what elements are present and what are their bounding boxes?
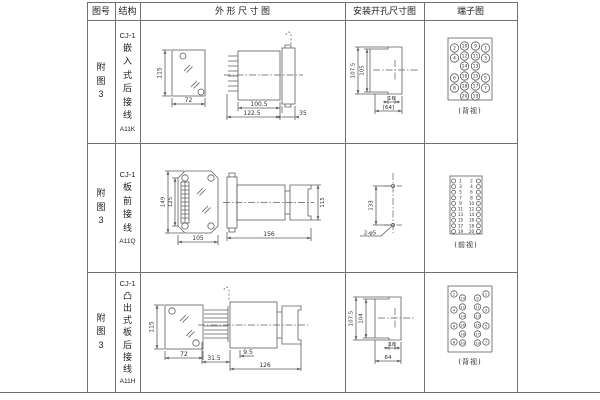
row2-fig-label: 附图3 [96, 187, 107, 228]
dim-side-2: 9.5 [243, 349, 253, 356]
svg-text:1: 1 [484, 46, 487, 52]
header-structure: 结构 [115, 2, 140, 20]
row1-code: A11K [120, 126, 135, 133]
row2-view-label: (前视) [454, 240, 477, 249]
svg-text:17: 17 [458, 223, 464, 228]
dim-front-height: 115 [149, 321, 156, 333]
svg-text:8: 8 [470, 195, 473, 200]
svg-text:16: 16 [469, 218, 475, 223]
svg-text:9: 9 [476, 295, 479, 300]
svg-text:11: 11 [475, 304, 480, 309]
svg-text:14: 14 [460, 313, 465, 318]
dim-side-1: 100.5 [250, 101, 267, 108]
svg-text:14: 14 [469, 212, 475, 217]
row2-structure-cell: CJ-1 板前接线 A11Q [115, 143, 140, 272]
row3-mount-type: 凸出式板后接线 [122, 290, 133, 375]
row1-mount-type: 嵌入式后接线 [122, 42, 133, 123]
svg-text:6: 6 [470, 190, 473, 195]
row3-fig-cell: 附图3 [87, 272, 115, 392]
svg-text:15: 15 [475, 322, 480, 327]
svg-text:20: 20 [469, 229, 475, 234]
svg-text:3: 3 [484, 56, 487, 62]
row1-outline-drawing: 115 72 100.5 122.5 35 [140, 20, 345, 143]
dim-side-3: 126 [259, 362, 271, 369]
row1-front-view: 115 72 [157, 50, 206, 107]
row1-structure-cell: CJ-1 嵌入式后接线 A11K [115, 20, 140, 143]
svg-text:3: 3 [485, 307, 488, 312]
spec-sheet-page: 图号 结构 外 形 尺 寸 图 安装开孔尺寸图 端子图 附图3 CJ-1 嵌入式… [0, 0, 600, 400]
dim-install-v-outer: 107.5 [349, 310, 355, 326]
svg-text:19: 19 [475, 340, 480, 345]
svg-text:12: 12 [460, 304, 465, 309]
row2-holes: 133 2-φ5 [360, 173, 402, 237]
row1-cutout: 107.5 105 16 [64] [351, 47, 419, 114]
svg-text:14: 14 [462, 64, 468, 70]
row3-terminal-diagram: 2 4 6 8 10 12 14 16 18 20 9 11 13 15 17 … [424, 272, 517, 392]
svg-text:5: 5 [459, 190, 462, 195]
dim-side-h: 115 [320, 197, 326, 208]
hole-callout: 2-φ5 [364, 231, 377, 237]
svg-text:7: 7 [459, 195, 462, 200]
svg-text:12: 12 [469, 207, 475, 212]
svg-text:20: 20 [460, 340, 465, 345]
dim-side-3: 35 [299, 110, 307, 117]
row2-terminal-block: 12 34 56 78 910 1112 1314 1516 1718 1920 [450, 176, 482, 234]
svg-text:9: 9 [459, 201, 462, 206]
svg-text:4: 4 [453, 56, 456, 62]
dim-front-height: 115 [157, 67, 164, 79]
dim-side-1: 31.5 [207, 355, 221, 362]
svg-text:4: 4 [470, 184, 473, 189]
dim-install-v-outer: 107.5 [351, 62, 357, 78]
row2-terminal-diagram: 12 34 56 78 910 1112 1314 1516 1718 1920… [424, 143, 517, 272]
svg-text:15: 15 [458, 218, 464, 223]
table-border-bottom [0, 392, 600, 393]
row1-model: CJ-1 [120, 31, 136, 40]
row1-view-label: (背视) [458, 106, 481, 115]
dim-install-v-inner: 104 [359, 313, 365, 324]
row1-side-view: 100.5 122.5 35 [224, 32, 307, 120]
svg-text:6: 6 [453, 76, 456, 82]
row2-side-view: 115 156 [223, 173, 326, 241]
dim-hole-spacing: 133 [369, 200, 375, 211]
svg-text:2: 2 [453, 291, 456, 296]
dim-install-h-small: 16 [389, 342, 396, 348]
row3-code: A11H [120, 378, 136, 385]
svg-text:20: 20 [462, 94, 468, 100]
svg-text:2: 2 [470, 179, 473, 184]
svg-text:17: 17 [475, 331, 480, 336]
row2-code: A11Q [119, 238, 135, 245]
svg-text:19: 19 [458, 229, 464, 234]
row2-model: CJ-1 [120, 170, 136, 179]
row3-fig-label: 附图3 [96, 312, 107, 353]
svg-text:11: 11 [458, 207, 464, 212]
row2-outline-drawing: 149 125 105 115 156 [140, 143, 345, 272]
svg-text:17: 17 [473, 84, 479, 90]
svg-text:18: 18 [460, 331, 465, 336]
svg-text:11: 11 [473, 54, 479, 60]
table-border-right [517, 2, 518, 392]
row3-outline-drawing: 115 72 9.5 31.5 126 [140, 272, 345, 392]
svg-text:13: 13 [475, 313, 480, 318]
svg-text:15: 15 [473, 74, 479, 80]
svg-text:18: 18 [462, 84, 468, 90]
row2-front-view: 149 125 105 [161, 171, 219, 245]
svg-text:16: 16 [462, 74, 468, 80]
row2-install-drawing: 133 2-φ5 [345, 143, 424, 272]
svg-text:7: 7 [484, 86, 487, 92]
svg-text:5: 5 [484, 76, 487, 82]
row3-install-drawing: 107.5 104 16 64 [345, 272, 424, 392]
svg-text:3: 3 [459, 184, 462, 189]
svg-text:12: 12 [462, 54, 468, 60]
header-terminal: 端子图 [424, 2, 517, 20]
dim-front-h2: 125 [168, 196, 174, 207]
svg-text:5: 5 [485, 323, 488, 328]
dim-install-h-small: 16 [388, 96, 395, 102]
row1-fig-label: 附图3 [96, 61, 107, 102]
svg-text:8: 8 [453, 339, 456, 344]
row1-install-drawing: 107.5 105 16 [64] [345, 20, 424, 143]
svg-text:13: 13 [473, 64, 479, 70]
row3-side-view: 9.5 31.5 126 [198, 287, 308, 371]
dim-install-width: 64 [385, 355, 392, 361]
svg-text:1: 1 [485, 291, 488, 296]
svg-text:10: 10 [460, 295, 465, 300]
row1-terminal-diagram: 2 10 9 1 4 12 11 3 14 13 6 16 15 5 8 18 … [424, 20, 517, 143]
svg-text:10: 10 [462, 44, 468, 50]
row1-terminal-block: 2 10 9 1 4 12 11 3 14 13 6 16 15 5 8 18 … [448, 38, 492, 100]
row3-structure-cell: CJ-1 凸出式板后接线 A11H [115, 272, 140, 392]
row3-view-label: (背视) [458, 357, 481, 366]
svg-text:10: 10 [469, 201, 475, 206]
row3-cutout: 107.5 104 16 64 [349, 297, 416, 364]
svg-text:2: 2 [453, 46, 456, 52]
dim-front-width: 72 [180, 351, 188, 358]
row2-fig-cell: 附图3 [87, 143, 115, 272]
dim-front-h1: 149 [161, 196, 167, 207]
svg-text:16: 16 [460, 322, 465, 327]
svg-text:9: 9 [474, 44, 477, 50]
dim-front-w: 105 [192, 235, 204, 242]
dim-side-len: 156 [263, 231, 275, 238]
dim-front-width: 72 [185, 97, 193, 104]
header-fig-no: 图号 [87, 2, 115, 20]
dim-side-2: 122.5 [243, 110, 260, 117]
row1-fig-cell: 附图3 [87, 20, 115, 143]
row2-mount-type: 板前接线 [122, 181, 133, 235]
svg-text:19: 19 [473, 94, 479, 100]
svg-text:8: 8 [453, 86, 456, 92]
dim-install-v-inner: 105 [360, 65, 366, 76]
svg-text:6: 6 [453, 323, 456, 328]
header-outline-dims: 外 形 尺 寸 图 [140, 2, 345, 20]
row3-model: CJ-1 [120, 279, 136, 288]
svg-text:18: 18 [469, 223, 475, 228]
row3-front-view: 115 72 [149, 305, 204, 360]
svg-text:1: 1 [459, 179, 462, 184]
header-install-dims: 安装开孔尺寸图 [345, 2, 424, 20]
dim-install-h-bracket: [64] [383, 105, 394, 111]
svg-text:4: 4 [453, 307, 456, 312]
svg-text:13: 13 [458, 212, 464, 217]
svg-text:7: 7 [485, 339, 488, 344]
row3-terminal-block: 2 4 6 8 10 12 14 16 18 20 9 11 13 15 17 … [448, 286, 492, 352]
